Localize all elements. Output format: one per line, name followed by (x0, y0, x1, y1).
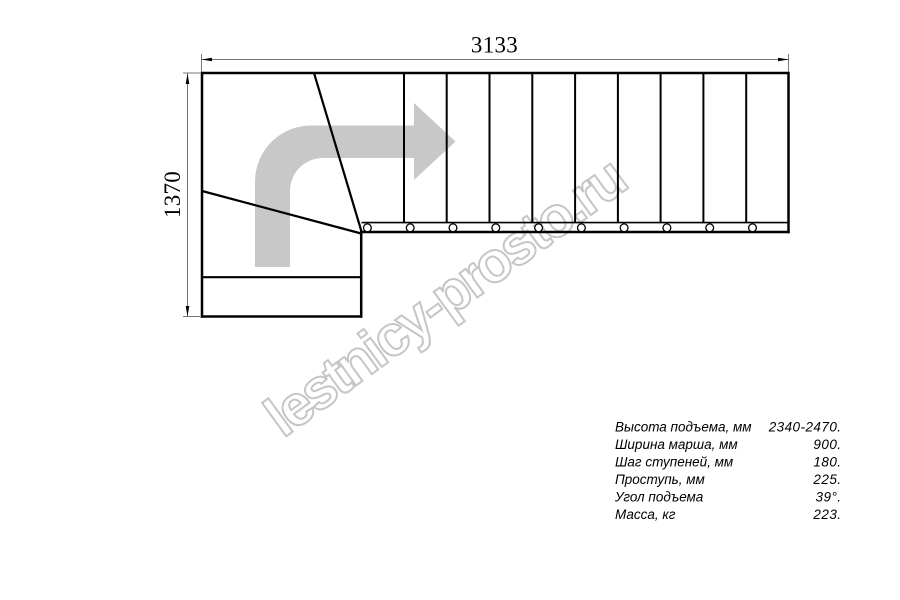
svg-text:Шаг ступеней, мм: Шаг ступеней, мм (615, 455, 733, 470)
svg-text:900.: 900. (813, 437, 841, 452)
svg-text:Высота подъема, мм: Высота подъема, мм (615, 420, 751, 435)
svg-text:3133: 3133 (471, 33, 518, 58)
svg-text:Проступь, мм: Проступь, мм (615, 472, 705, 487)
svg-text:Угол подъема: Угол подъема (614, 490, 704, 505)
svg-text:2340-2470.: 2340-2470. (768, 420, 842, 435)
svg-text:lestnicy-prosto.ru: lestnicy-prosto.ru (253, 146, 637, 449)
svg-text:225.: 225. (812, 472, 841, 487)
svg-text:1370: 1370 (160, 171, 185, 218)
svg-text:223.: 223. (812, 507, 841, 522)
svg-text:Ширина марша, мм: Ширина марша, мм (615, 437, 738, 452)
svg-text:Масса, кг: Масса, кг (615, 507, 676, 522)
svg-text:39°.: 39°. (816, 490, 842, 505)
svg-text:180.: 180. (813, 455, 841, 470)
